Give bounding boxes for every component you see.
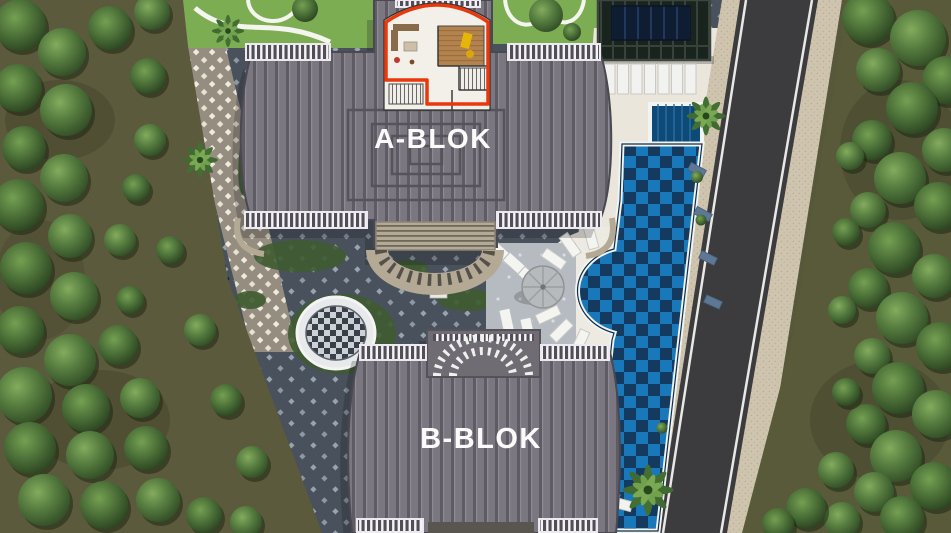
lawn-top-left <box>183 0 376 48</box>
lawn-top-right <box>490 0 598 44</box>
solar-panels <box>612 6 690 40</box>
floor-plan-overlay[interactable] <box>384 3 490 110</box>
sun-loungers-row <box>604 64 696 94</box>
stairs <box>459 68 487 90</box>
pergola <box>592 0 714 64</box>
a-blok-label: A-BLOK <box>374 123 492 154</box>
b-blok-building[interactable]: B-BLOK <box>340 330 620 533</box>
b-blok-label: B-BLOK <box>420 423 542 455</box>
fan-balcony <box>427 330 540 377</box>
stairs <box>389 84 423 104</box>
site-plan-render: A-BLOK <box>0 0 951 533</box>
entrance-step <box>428 522 534 533</box>
